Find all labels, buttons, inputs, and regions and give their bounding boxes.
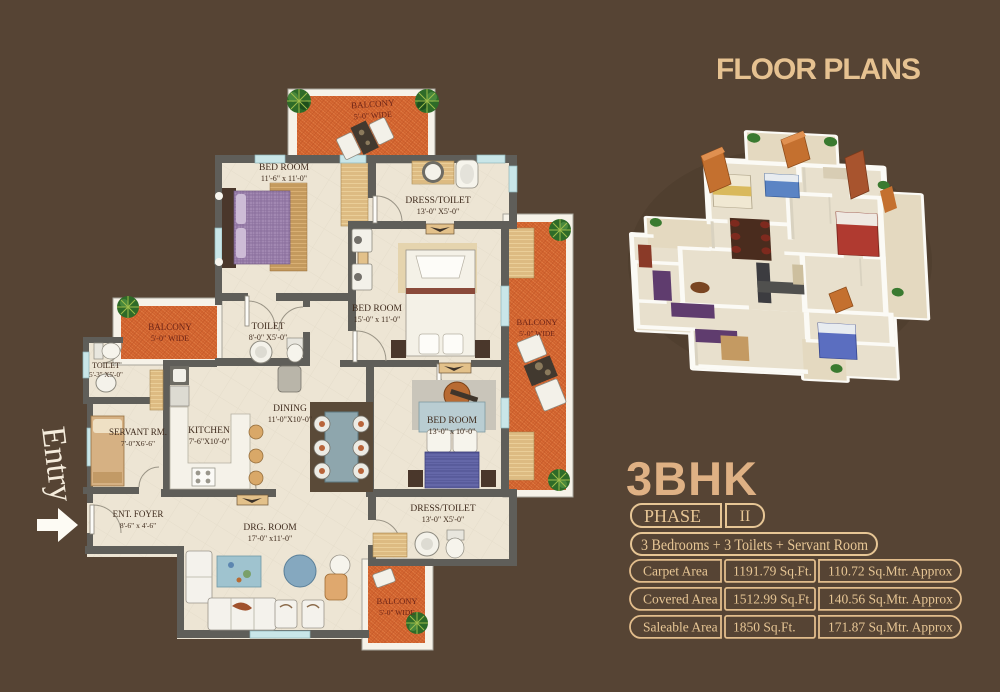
svg-text:110.72 Sq.Mtr. Approx: 110.72 Sq.Mtr. Approx bbox=[828, 564, 953, 579]
svg-text:7'-0"X6'-6": 7'-0"X6'-6" bbox=[121, 439, 155, 448]
svg-text:SERVANT RM.: SERVANT RM. bbox=[109, 427, 167, 437]
svg-text:7'-6"X10'-0": 7'-6"X10'-0" bbox=[189, 437, 230, 446]
svg-text:Saleable Area: Saleable Area bbox=[643, 620, 718, 635]
svg-text:11'-0"X10'-0": 11'-0"X10'-0" bbox=[268, 415, 312, 424]
svg-text:KITCHEN: KITCHEN bbox=[188, 426, 230, 436]
svg-text:1850 Sq.Ft.: 1850 Sq.Ft. bbox=[733, 620, 796, 635]
svg-text:BALCONY: BALCONY bbox=[148, 322, 192, 332]
svg-text:BALCONY: BALCONY bbox=[516, 317, 557, 327]
svg-text:8'-0" X5'-0": 8'-0" X5'-0" bbox=[249, 333, 288, 342]
svg-text:DRESS/TOILET: DRESS/TOILET bbox=[410, 504, 475, 514]
svg-text:TOILET: TOILET bbox=[251, 322, 284, 332]
svg-text:DINING: DINING bbox=[273, 404, 307, 414]
svg-text:II: II bbox=[740, 508, 751, 525]
svg-text:ENT. FOYER: ENT. FOYER bbox=[113, 509, 164, 519]
svg-text:TOILET: TOILET bbox=[92, 361, 120, 370]
svg-text:1191.79 Sq.Ft.: 1191.79 Sq.Ft. bbox=[733, 564, 812, 579]
svg-text:5'-3" X5'-0": 5'-3" X5'-0" bbox=[89, 371, 123, 379]
svg-text:3BHK: 3BHK bbox=[626, 452, 758, 505]
svg-text:Covered Area: Covered Area bbox=[643, 592, 718, 607]
svg-text:11'-6" x 11'-0": 11'-6" x 11'-0" bbox=[261, 174, 307, 183]
svg-text:17'-0" x11'-0": 17'-0" x11'-0" bbox=[248, 534, 292, 543]
svg-text:PHASE: PHASE bbox=[644, 506, 701, 526]
svg-text:140.56 Sq.Mtr. Approx: 140.56 Sq.Mtr. Approx bbox=[828, 592, 953, 607]
svg-text:8'-6" x 4'-6": 8'-6" x 4'-6" bbox=[120, 521, 156, 530]
svg-text:13'-0" X5'-0": 13'-0" X5'-0" bbox=[417, 207, 460, 216]
svg-text:FLOOR PLANS: FLOOR PLANS bbox=[716, 53, 920, 86]
svg-text:13'-0" X5'-0": 13'-0" X5'-0" bbox=[422, 515, 465, 524]
svg-text:15'-0" x 11'-0": 15'-0" x 11'-0" bbox=[354, 315, 400, 324]
svg-text:5'-0" WIDE: 5'-0" WIDE bbox=[519, 329, 555, 338]
svg-text:5'-0" WIDE: 5'-0" WIDE bbox=[379, 608, 415, 617]
svg-text:BALCONY: BALCONY bbox=[376, 596, 417, 606]
svg-text:DRG. ROOM: DRG. ROOM bbox=[243, 523, 297, 533]
svg-text:1512.99 Sq.Ft.: 1512.99 Sq.Ft. bbox=[733, 592, 813, 607]
svg-text:5'-0" WIDE: 5'-0" WIDE bbox=[151, 334, 189, 343]
svg-text:171.87 Sq.Mtr. Approx: 171.87 Sq.Mtr. Approx bbox=[828, 620, 953, 635]
svg-text:BED ROOM: BED ROOM bbox=[427, 416, 477, 426]
svg-text:BED ROOM: BED ROOM bbox=[352, 304, 402, 314]
svg-text:3 Bedrooms + 3 Toilets + Serva: 3 Bedrooms + 3 Toilets + Servant Room bbox=[641, 537, 868, 554]
svg-text:DRESS/TOILET: DRESS/TOILET bbox=[405, 196, 470, 206]
svg-text:13'-0" x 10'-0": 13'-0" x 10'-0" bbox=[429, 427, 476, 436]
svg-text:Carpet Area: Carpet Area bbox=[643, 564, 708, 579]
svg-text:BED ROOM: BED ROOM bbox=[259, 163, 309, 173]
